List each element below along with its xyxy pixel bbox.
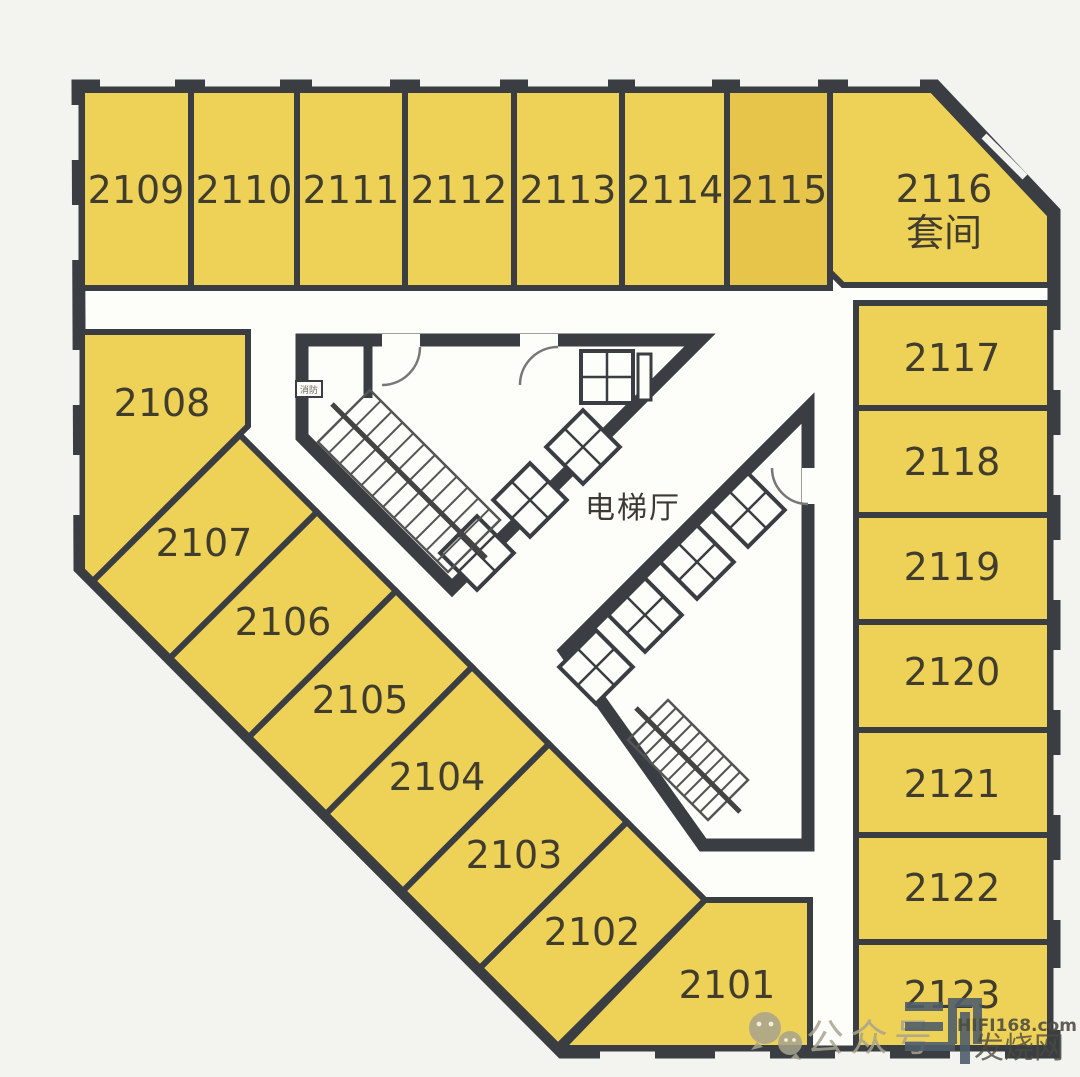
- room-label-2114: 2114: [627, 168, 724, 212]
- elevator-shaft-icon: [581, 351, 633, 403]
- floorplan-page: 21092110211121122113211421152116套间211721…: [0, 0, 1080, 1077]
- room-label-2113: 2113: [520, 168, 617, 212]
- room-label-2105: 2105: [312, 678, 409, 722]
- fire-label: 消防: [300, 384, 318, 396]
- door-opening: [802, 468, 815, 504]
- room-label-2110: 2110: [196, 168, 293, 212]
- room-label-2122: 2122: [904, 866, 1001, 910]
- room-label-2120: 2120: [904, 650, 1001, 694]
- room-label-2108: 2108: [114, 381, 211, 425]
- floorplan-drawing: 21092110211121122113211421152116套间211721…: [0, 0, 1080, 1077]
- room-label-2107: 2107: [156, 521, 253, 565]
- site-name-watermark: 发烧网: [974, 1031, 1064, 1066]
- room-label-2109: 2109: [88, 168, 185, 212]
- room-label-2111: 2111: [303, 168, 400, 212]
- room-label-2103: 2103: [466, 833, 563, 877]
- room-label-2118: 2118: [904, 440, 1001, 484]
- room-label-2115: 2115: [731, 168, 828, 212]
- room-sublabel-2116: 套间: [906, 211, 982, 255]
- room-label-2101: 2101: [679, 963, 776, 1007]
- room-label-2106: 2106: [235, 600, 332, 644]
- elevator-machine-box: [638, 354, 651, 400]
- room-label-2117: 2117: [904, 336, 1001, 380]
- room-label-2121: 2121: [904, 762, 1001, 806]
- room-label-2104: 2104: [389, 755, 486, 799]
- room-label-2116: 2116: [896, 167, 993, 211]
- elevator-hall-label: 电梯厅: [585, 491, 681, 526]
- room-label-2112: 2112: [411, 168, 508, 212]
- room-label-2102: 2102: [544, 910, 641, 954]
- room-label-2119: 2119: [904, 545, 1001, 589]
